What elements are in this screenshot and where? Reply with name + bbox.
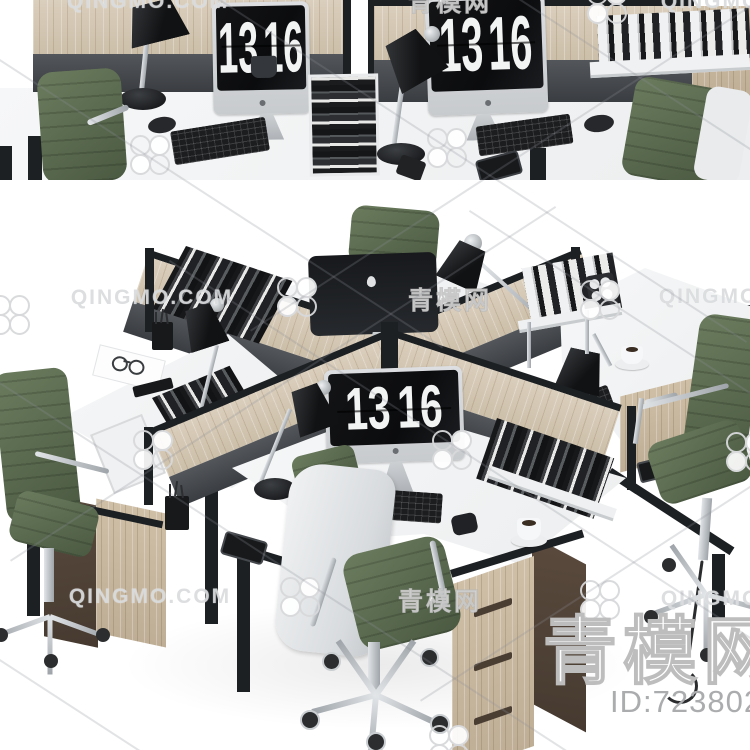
caster-wheel xyxy=(0,628,8,642)
pen-holder xyxy=(165,496,189,530)
caster-wheel xyxy=(430,714,450,734)
caster-wheel xyxy=(662,558,676,572)
office-chair-green xyxy=(36,67,128,180)
banner-closeup-render: 1316 1316 xyxy=(0,0,750,180)
desk-shelf-riser xyxy=(514,252,630,376)
monitor-back-panel xyxy=(308,252,439,336)
caster-wheel xyxy=(420,648,439,667)
lamp-cap xyxy=(424,26,440,42)
chair-seat xyxy=(644,417,750,508)
caster-wheel xyxy=(44,654,58,668)
desk-leg xyxy=(237,552,250,692)
interlocking-circles-logo xyxy=(0,295,30,335)
caster-wheel xyxy=(300,710,320,730)
site-logo-watermark: 青模网 xyxy=(543,592,750,699)
caster-wheel xyxy=(96,628,110,642)
chair-base xyxy=(270,644,480,750)
chair-base xyxy=(0,588,112,648)
partition-end-post xyxy=(145,248,154,332)
office-chair-green xyxy=(250,444,480,750)
apple-logo-icon xyxy=(485,100,491,106)
shelf-leg xyxy=(527,322,531,368)
desk-leg xyxy=(28,136,42,180)
lamp-shade xyxy=(122,0,190,49)
pen-holder xyxy=(152,322,173,350)
desk-leg xyxy=(205,478,218,624)
apple-logo-icon xyxy=(259,100,265,106)
office-chair-green xyxy=(0,366,130,666)
chair-seat xyxy=(7,489,101,560)
apple-logo-icon xyxy=(367,276,376,287)
partition-end-post xyxy=(144,427,153,505)
monitor-screen: 1316 xyxy=(216,5,306,91)
under-desk-book-shelf xyxy=(488,408,638,518)
desktop-file-rack xyxy=(308,73,380,176)
caster-wheel xyxy=(366,732,386,750)
desk-leg xyxy=(0,146,12,180)
cup-silhouette xyxy=(251,56,277,78)
shelf-leg xyxy=(585,310,589,354)
model-id: ID:723802 xyxy=(610,684,750,720)
lamp-shade xyxy=(284,380,339,438)
desk-lamp xyxy=(116,0,196,116)
desk-leg xyxy=(530,148,546,180)
desk-lamp xyxy=(372,20,452,180)
caster-wheel xyxy=(322,652,341,671)
coffee-cup xyxy=(511,512,549,550)
chair-post xyxy=(698,498,712,561)
product-render-image: 1316 1316 xyxy=(0,0,750,750)
chair-armrest xyxy=(633,398,644,444)
